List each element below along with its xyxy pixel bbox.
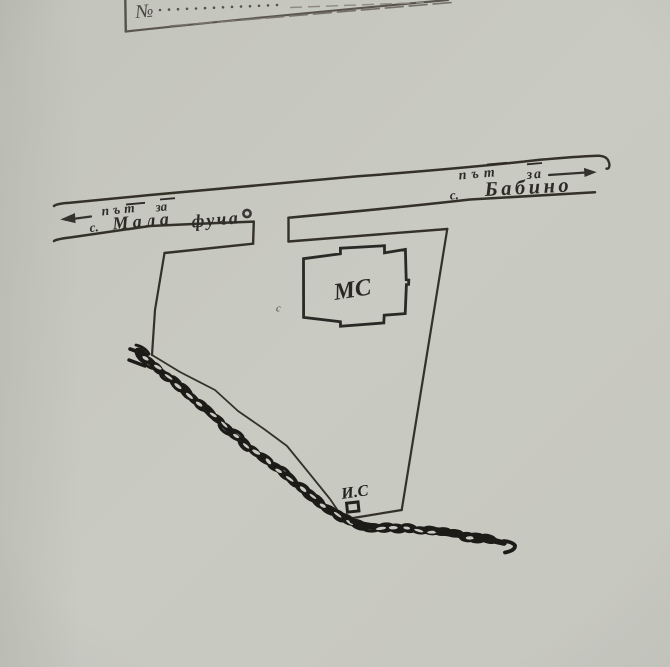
- svg-text:с.: с.: [449, 187, 459, 202]
- svg-text:c: c: [276, 304, 281, 315]
- svg-text:фуча: фуча: [191, 207, 241, 231]
- svg-text:Бабино: Бабино: [483, 174, 573, 201]
- svg-text:№: №: [134, 0, 155, 23]
- svg-text:с.: с.: [89, 219, 100, 235]
